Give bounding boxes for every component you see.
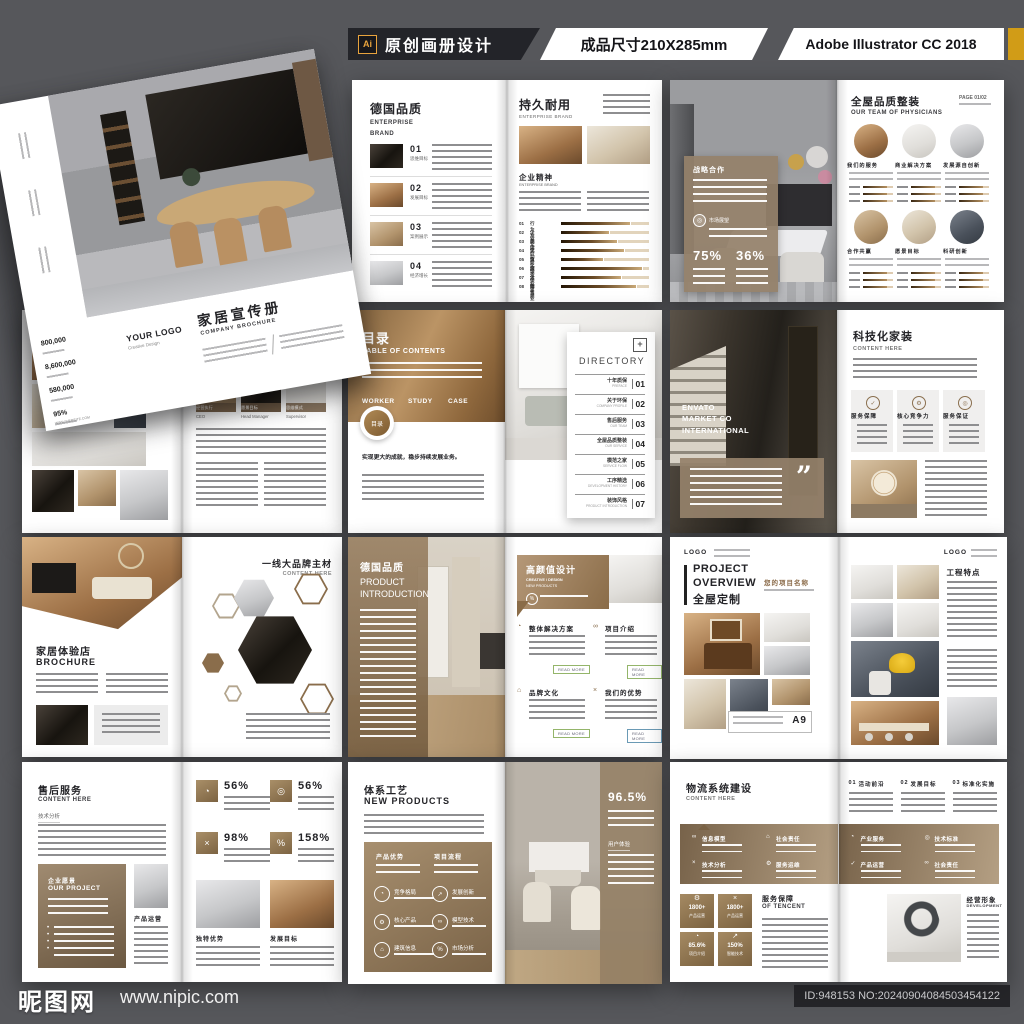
text-lines: [903, 424, 933, 444]
ops-label: 产品运营: [134, 914, 162, 923]
feature-box: ✓ 服务保障: [851, 390, 893, 452]
process-item: 市场分析: [452, 944, 474, 952]
photo: [902, 124, 936, 158]
model-icon: ∞: [692, 834, 696, 840]
market-tag: 市场展望: [709, 217, 729, 224]
photo: [851, 565, 893, 599]
product-title: 德国品质: [360, 559, 404, 574]
directory-row: 关于环保COMPANY PROFILE02: [575, 394, 645, 408]
text-lines: [362, 474, 484, 500]
photo-classic-bedroom: [684, 613, 760, 675]
text-lines: [849, 258, 893, 266]
text-lines: [196, 462, 258, 506]
item-no: 04: [410, 261, 422, 271]
watermark-logo: 昵图网: [18, 982, 96, 1017]
text-lines: [452, 925, 486, 932]
brand-left-title: 家居体验店: [36, 643, 91, 658]
design-sub2: NEW PRODUCTS: [526, 584, 557, 588]
check-icon: ✓: [866, 396, 880, 410]
section-title: 我们的优势: [605, 687, 643, 697]
stat-tile: ◔85.6%项目介绍: [680, 932, 714, 966]
stat-tile: ×1800+产品运营: [718, 894, 752, 928]
text-lines: [224, 796, 270, 810]
chart-icon: ◔: [374, 886, 390, 902]
project-title2: OVERVIEW: [693, 577, 756, 589]
text-lines: [764, 589, 814, 593]
read-more-button: READ MORE: [627, 665, 662, 679]
text-lines: [953, 792, 997, 814]
text-lines: [102, 713, 160, 737]
quality-sub1: ENTERPRISE: [370, 120, 413, 126]
intro-icon: ∞: [593, 623, 598, 630]
section-title: 整体解决方案: [529, 623, 574, 633]
photo: [950, 124, 984, 158]
circle-label: 商业解决方案: [895, 162, 943, 169]
photo-living: [22, 537, 182, 633]
page-number: PAGE 01/02: [959, 95, 987, 101]
text-lines: [362, 362, 482, 380]
percent-icon: %: [270, 832, 292, 854]
quote-card: ”: [680, 458, 824, 518]
standard-icon: ◎: [925, 834, 930, 841]
stat-overlay: 96.5% 用户体验: [600, 762, 662, 984]
stat-36: 36%: [736, 248, 765, 263]
toc-title: 目录: [362, 328, 390, 347]
circle-label: 科研创新: [943, 248, 991, 255]
header-title: 原创画册设计: [385, 32, 493, 56]
photo: [370, 222, 403, 246]
photo-kitchen-bar: [851, 701, 939, 745]
watermark-url: www.nipic.com: [120, 987, 239, 1008]
photo: [78, 470, 116, 506]
brand-right-title: 一线大品牌主材: [262, 557, 332, 570]
vision-en: OUR PROJECT: [48, 885, 100, 892]
aftersale-sub: CONTENT HERE: [38, 797, 91, 803]
target-icon: ◎: [270, 780, 292, 802]
photo-shelves: [134, 864, 168, 908]
ops-icon: ⚙: [766, 860, 771, 867]
hexagon-outline: [294, 573, 328, 605]
text-lines: [452, 897, 486, 904]
text-lines: [298, 796, 334, 810]
photo: [897, 565, 939, 599]
process-sub: NEW PRODUCTS: [364, 796, 450, 806]
photo: [764, 646, 810, 675]
photo: [519, 126, 582, 164]
hexagon-outline: [224, 685, 242, 702]
spine-text-lines: [36, 246, 50, 273]
analysis-icon: ×: [692, 860, 696, 866]
top-item-no: 03: [953, 780, 961, 786]
directory-row: 售后服务OUR TEAM03: [575, 414, 645, 428]
a9-label: A9: [792, 715, 807, 726]
spread-product: 德国品质 PRODUCT INTRODUCTION 高颜值设计 CREATIVE…: [348, 537, 662, 757]
quality-sub2: BRAND: [370, 131, 394, 137]
top-item: 活动前沿: [859, 780, 885, 788]
spine-text-lines: [26, 189, 40, 216]
text-lines: [394, 897, 434, 904]
image-id-badge: ID:948153 NO:20240904084503454122: [794, 985, 1010, 1007]
process-item: 发展创新: [452, 888, 474, 896]
tag-study: STUDY: [408, 398, 433, 405]
logistics-title: 物流系统建设: [686, 780, 752, 795]
circle-label: 我们的服务: [847, 162, 895, 169]
directory-title: DIRECTORY: [579, 356, 645, 366]
gray-box: [94, 705, 168, 745]
item-no: 01: [410, 144, 422, 154]
vision-zh: 企业愿景: [48, 876, 76, 885]
top-item: 发展目标: [911, 780, 937, 788]
photo: [950, 210, 984, 244]
photo-label: 发展目标: [270, 934, 298, 943]
directory-card: + DIRECTORY 十年质保PREFACE01 关于环保COMPANY PR…: [567, 332, 655, 518]
toc-note: 实现更大的成就，稳步持续发展业务。: [362, 452, 461, 461]
item-label: 经济增长: [410, 273, 428, 279]
spread-logistics: 物流系统建设 CONTENT HERE ∞信息模型 ⌂社会责任 ×技术分析 ⚙服…: [670, 762, 1007, 982]
arrow-icon: ↗: [432, 886, 448, 902]
text-lines: [849, 792, 893, 814]
features-title: 工程特点: [947, 567, 981, 578]
text-lines: [945, 172, 989, 180]
product-sub1: PRODUCT: [360, 577, 405, 587]
directory-row: 工序精选DEVELOPMENT HISTORY06: [575, 474, 645, 488]
project-name-label: 您的项目名称: [764, 577, 809, 587]
durable-sub: ENTERPRISE BRAND: [519, 114, 573, 119]
band-left: ∞信息模型 ⌂社会责任 ×技术分析 ⚙服务运维: [680, 824, 838, 884]
product-icon: ✓: [851, 860, 856, 867]
cover-mockup: 800,000 8,600,000 580,000 95% WWW.WEBSIT…: [0, 49, 371, 431]
circle-label: 愿景目标: [895, 248, 943, 255]
circle-label: 合作共赢: [847, 248, 895, 255]
cover-stat: 8,600,000: [43, 351, 78, 380]
text-lines: [967, 914, 999, 962]
text-lines: [279, 324, 345, 351]
culture-icon: ⌂: [517, 687, 521, 694]
text-lines: [434, 864, 478, 876]
read-more-button: READ MORE: [553, 729, 590, 738]
spec-table: A9: [728, 711, 812, 733]
stat-75: 75%: [693, 248, 722, 263]
gear-icon: ⚙: [912, 396, 926, 410]
process-item: 竞争格局: [394, 888, 416, 896]
mini-bars: [849, 272, 893, 293]
photo: [196, 880, 260, 928]
directory-row: 装饰风格PRODUCT INTRODUCTION07: [575, 494, 645, 508]
spread-brand: 家居体验店 BROCHURE 一线大品牌主材 CONTENT HERE: [22, 537, 342, 757]
stat-tile: ⚙1800+产品运营: [680, 894, 714, 928]
read-more-button: READ MORE: [627, 729, 662, 743]
text-lines: [897, 258, 941, 266]
chart-icon: ◔: [196, 780, 218, 802]
text-lines: [693, 268, 725, 286]
text-lines: [36, 673, 98, 697]
process-panel: 产品优势 项目流程 ◔ 竞争格局 ↗ 发展创新 ⚙ 核心产品 ∞ 模型技术 ⌂ …: [364, 842, 492, 972]
project-title1: PROJECT: [693, 563, 748, 575]
text-lines: [945, 258, 989, 266]
stat-value: 158%: [298, 832, 330, 844]
photo: [854, 124, 888, 158]
text-lines: [849, 172, 893, 180]
envato-caption: ENVATO MARKET CO INTERNATIONAL: [682, 402, 746, 436]
toc-sub: TABLE OF CONTENTS: [362, 348, 445, 355]
photo-spiral-stairs: [887, 894, 961, 962]
text-lines: [394, 953, 434, 960]
photo-hexagon-large: [238, 615, 312, 685]
photo: [120, 470, 168, 520]
text-lines: [376, 864, 420, 876]
spread-project: LOGO PROJECT OVERVIEW 全屋定制 您的项目名称 A9 LOG…: [670, 537, 1007, 759]
feature-box: ⚙ 核心竞争力: [897, 390, 939, 452]
coin-icon: ◎: [693, 214, 706, 227]
text-lines: [603, 94, 650, 114]
aftersale-title: 售后服务: [38, 782, 82, 797]
mini-bars: [897, 186, 941, 207]
spirit-title: 企业精神: [519, 172, 553, 183]
strategy-title: 战略合作: [693, 165, 725, 175]
text-lines: [519, 191, 581, 211]
text-lines: [54, 926, 114, 958]
text-lines: [270, 946, 334, 970]
photo-entry-hall: [851, 460, 917, 518]
text-lines: [298, 848, 334, 862]
toc-header-panel: 目录 TABLE OF CONTENTS WORKER STUDY CASE: [348, 310, 505, 422]
strategy-card: 战略合作 ◎ 市场展望 75% 36%: [684, 156, 778, 292]
photo: [36, 705, 88, 745]
dev-en: DEVELOPMENT: [967, 903, 1003, 908]
text-lines: [714, 549, 750, 557]
vision-box: 企业愿景 OUR PROJECT ••••: [38, 864, 126, 968]
product-sub2: INTRODUCTION: [360, 589, 429, 599]
service-zh: 服务保障: [762, 894, 794, 904]
gear-icon: ⚙: [374, 914, 390, 930]
durable-title: 持久耐用: [519, 96, 571, 113]
stat-value: 56%: [224, 780, 249, 792]
tag-case: CASE: [448, 398, 468, 405]
spread-process: 体系工艺 NEW PRODUCTS 产品优势 项目流程 ◔ 竞争格局 ↗ 发展创…: [348, 762, 662, 984]
photo: [587, 126, 650, 164]
project-title3: 全屋定制: [693, 591, 741, 607]
text-lines: [38, 824, 166, 856]
service-en: OF TENCENT: [762, 904, 805, 910]
text-lines: [857, 424, 887, 444]
photo-label: 独特优势: [196, 934, 224, 943]
target-icon: ◎: [958, 396, 972, 410]
spread-quality: 德国品质 ENTERPRISE BRAND 01 思维目标 02 发展目标 03…: [352, 80, 662, 302]
quality-title: 德国品质: [370, 100, 422, 117]
text-lines: [736, 268, 768, 286]
text-lines: [196, 946, 260, 970]
spine-text-lines: [16, 132, 30, 159]
text-lines: [949, 424, 979, 444]
text-lines: [364, 814, 484, 834]
directory-row: 全屋品质整装OUR SERVICE04: [575, 434, 645, 448]
process-item: 建筑信息: [394, 944, 416, 952]
gold-corner: [1008, 28, 1024, 60]
plus-icon: +: [633, 338, 647, 352]
read-more-button: READ MORE: [553, 665, 590, 674]
chart-icon: ◔: [695, 933, 699, 940]
directory-row: 模范之家SERVICE FLOW05: [575, 454, 645, 468]
spread-toc: 目录 TABLE OF CONTENTS WORKER STUDY CASE 目…: [348, 310, 662, 533]
text-lines: [432, 222, 492, 248]
stat-965: 96.5%: [608, 790, 647, 804]
text-lines: [224, 848, 270, 862]
software-label: Adobe Illustrator CC 2018: [805, 36, 976, 52]
toc-badge: 目录: [360, 406, 394, 440]
header-bar: Ai 原创画册设计: [348, 28, 540, 60]
text-lines: [106, 673, 168, 697]
photo-hexagon: [234, 579, 274, 617]
text-lines: [529, 635, 585, 659]
text-lines: [690, 468, 782, 508]
item-label: 思维目标: [410, 156, 428, 162]
advantage-icon: ×: [593, 687, 597, 694]
tech-sub: CONTENT HERE: [853, 346, 902, 352]
text-lines: [587, 191, 649, 211]
item-label: 发展目标: [410, 195, 428, 201]
duty-icon: ⌂: [766, 834, 770, 840]
photo: [32, 470, 74, 512]
role-label: 思维模式: [286, 403, 326, 412]
circle-label: 发展源自创新: [943, 162, 991, 169]
social-icon: ∞: [925, 860, 929, 866]
close-icon: ×: [196, 832, 218, 854]
stat-value: 98%: [224, 832, 249, 844]
process-item: 核心产品: [394, 916, 416, 924]
text-lines: [947, 649, 997, 689]
photo-worker-hardhat: [851, 641, 939, 697]
text-lines: [853, 358, 977, 382]
hexagon-solid: [202, 653, 224, 673]
text-lines: [693, 179, 767, 206]
col-title: 产品优势: [376, 852, 404, 861]
link-icon: ∞: [432, 914, 448, 930]
photo: [370, 144, 403, 168]
text-lines: [452, 953, 486, 960]
solution-icon: ◔: [517, 623, 521, 630]
stat-value: 56%: [298, 780, 323, 792]
logo-text: LOGO: [684, 549, 707, 556]
role-en: Supervisor: [286, 414, 326, 419]
section-title: 项目介绍: [605, 623, 635, 633]
stat-tile: ↗150%智能技术: [718, 932, 752, 966]
text-lines: [925, 460, 987, 516]
tag-worker: WORKER: [362, 398, 395, 405]
logo-text: LOGO: [944, 549, 967, 556]
item-label: 案例展示: [410, 234, 428, 240]
top-item-no: 01: [849, 780, 857, 786]
section-title: 品牌文化: [529, 687, 559, 697]
text-lines: [762, 918, 828, 968]
mini-bars: [945, 186, 989, 207]
photo: [772, 679, 810, 705]
size-badge: 成品尺寸210X285mm: [540, 28, 768, 60]
band-right: ◔产业服务 ◎技术标准 ✓产品运营 ∞社会责任: [839, 824, 999, 884]
spread-tech: ENVATO MARKET CO INTERNATIONAL ” 科技化家装 C…: [670, 310, 1004, 533]
text-lines: [432, 261, 492, 287]
text-lines: [901, 792, 945, 814]
spread-team: 战略合作 ◎ 市场展望 75% 36% 全屋品质整装 OUR TEAM OF P…: [670, 80, 1004, 302]
design-title: 高颜值设计: [526, 563, 576, 576]
text-lines: [971, 549, 997, 557]
close-icon: ×: [733, 895, 737, 902]
text-lines: [134, 926, 168, 966]
industry-icon: ◔: [851, 834, 855, 840]
percent-icon: %: [432, 942, 448, 958]
photo: [370, 261, 403, 285]
item-no: 03: [410, 222, 422, 232]
photo: [609, 555, 662, 603]
text-lines: [608, 810, 654, 830]
home-icon: ⌂: [374, 942, 390, 958]
photo: [902, 210, 936, 244]
spread-aftersale: 售后服务 CONTENT HERE 技术分析 企业愿景 OUR PROJECT …: [22, 762, 342, 982]
arrow-icon: ↗: [732, 933, 738, 940]
top-item-no: 02: [901, 780, 909, 786]
team-title: 全屋品质整装: [851, 94, 920, 109]
photo: [764, 613, 810, 642]
product-overlay: 德国品质 PRODUCT INTRODUCTION: [348, 537, 428, 757]
quote-icon: ”: [796, 460, 812, 493]
text-lines: [246, 713, 330, 739]
directory-row: 十年质保PREFACE01: [575, 374, 645, 388]
software-badge: Adobe Illustrator CC 2018: [778, 28, 1004, 60]
photo-cover-kitchen: [48, 49, 353, 317]
text-lines: [432, 144, 492, 170]
mini-bars: [849, 186, 893, 207]
hexagon-outline: [300, 683, 334, 715]
mini-bars: [945, 272, 989, 293]
team-sub: OUR TEAM OF PHYSICIANS: [851, 110, 942, 116]
text-lines: [540, 595, 588, 601]
ux-label: 用户体验: [608, 840, 630, 851]
text-lines: [394, 925, 434, 932]
design-sub1: CREATIVE / DESIGN: [526, 578, 563, 582]
text-lines: [605, 635, 657, 659]
text-lines: [196, 428, 326, 454]
role-en: CEO: [196, 414, 236, 419]
process-item: 模型技术: [452, 916, 474, 924]
text-lines: [48, 898, 108, 916]
photo: [270, 880, 334, 928]
photo: [897, 603, 939, 637]
spirit-sub: ENTERPRISE BRAND: [519, 183, 558, 187]
text-lines: [709, 228, 767, 241]
text-lines: [202, 338, 268, 365]
adobe-illustrator-icon: Ai: [358, 35, 377, 54]
text-lines: [608, 854, 654, 888]
text-lines: [264, 462, 326, 506]
text-lines: [432, 183, 492, 209]
size-label: 成品尺寸210X285mm: [581, 34, 728, 55]
brand-left-sub: BROCHURE: [36, 657, 96, 667]
photo: [854, 210, 888, 244]
text-lines: [897, 172, 941, 180]
mini-bars: [897, 272, 941, 293]
logistics-sub: CONTENT HERE: [686, 796, 735, 802]
photo: [947, 697, 997, 745]
tech-title: 科技化家装: [853, 328, 913, 344]
text-lines: [529, 699, 585, 723]
text-lines: [605, 699, 657, 723]
col-title: 项目流程: [434, 852, 462, 861]
text-lines: [959, 103, 991, 107]
text-lines: [360, 609, 416, 739]
feature-box: ◎ 服务保证: [943, 390, 985, 452]
photo: [370, 183, 403, 207]
photo: [851, 603, 893, 637]
process-title: 体系工艺: [364, 782, 408, 797]
